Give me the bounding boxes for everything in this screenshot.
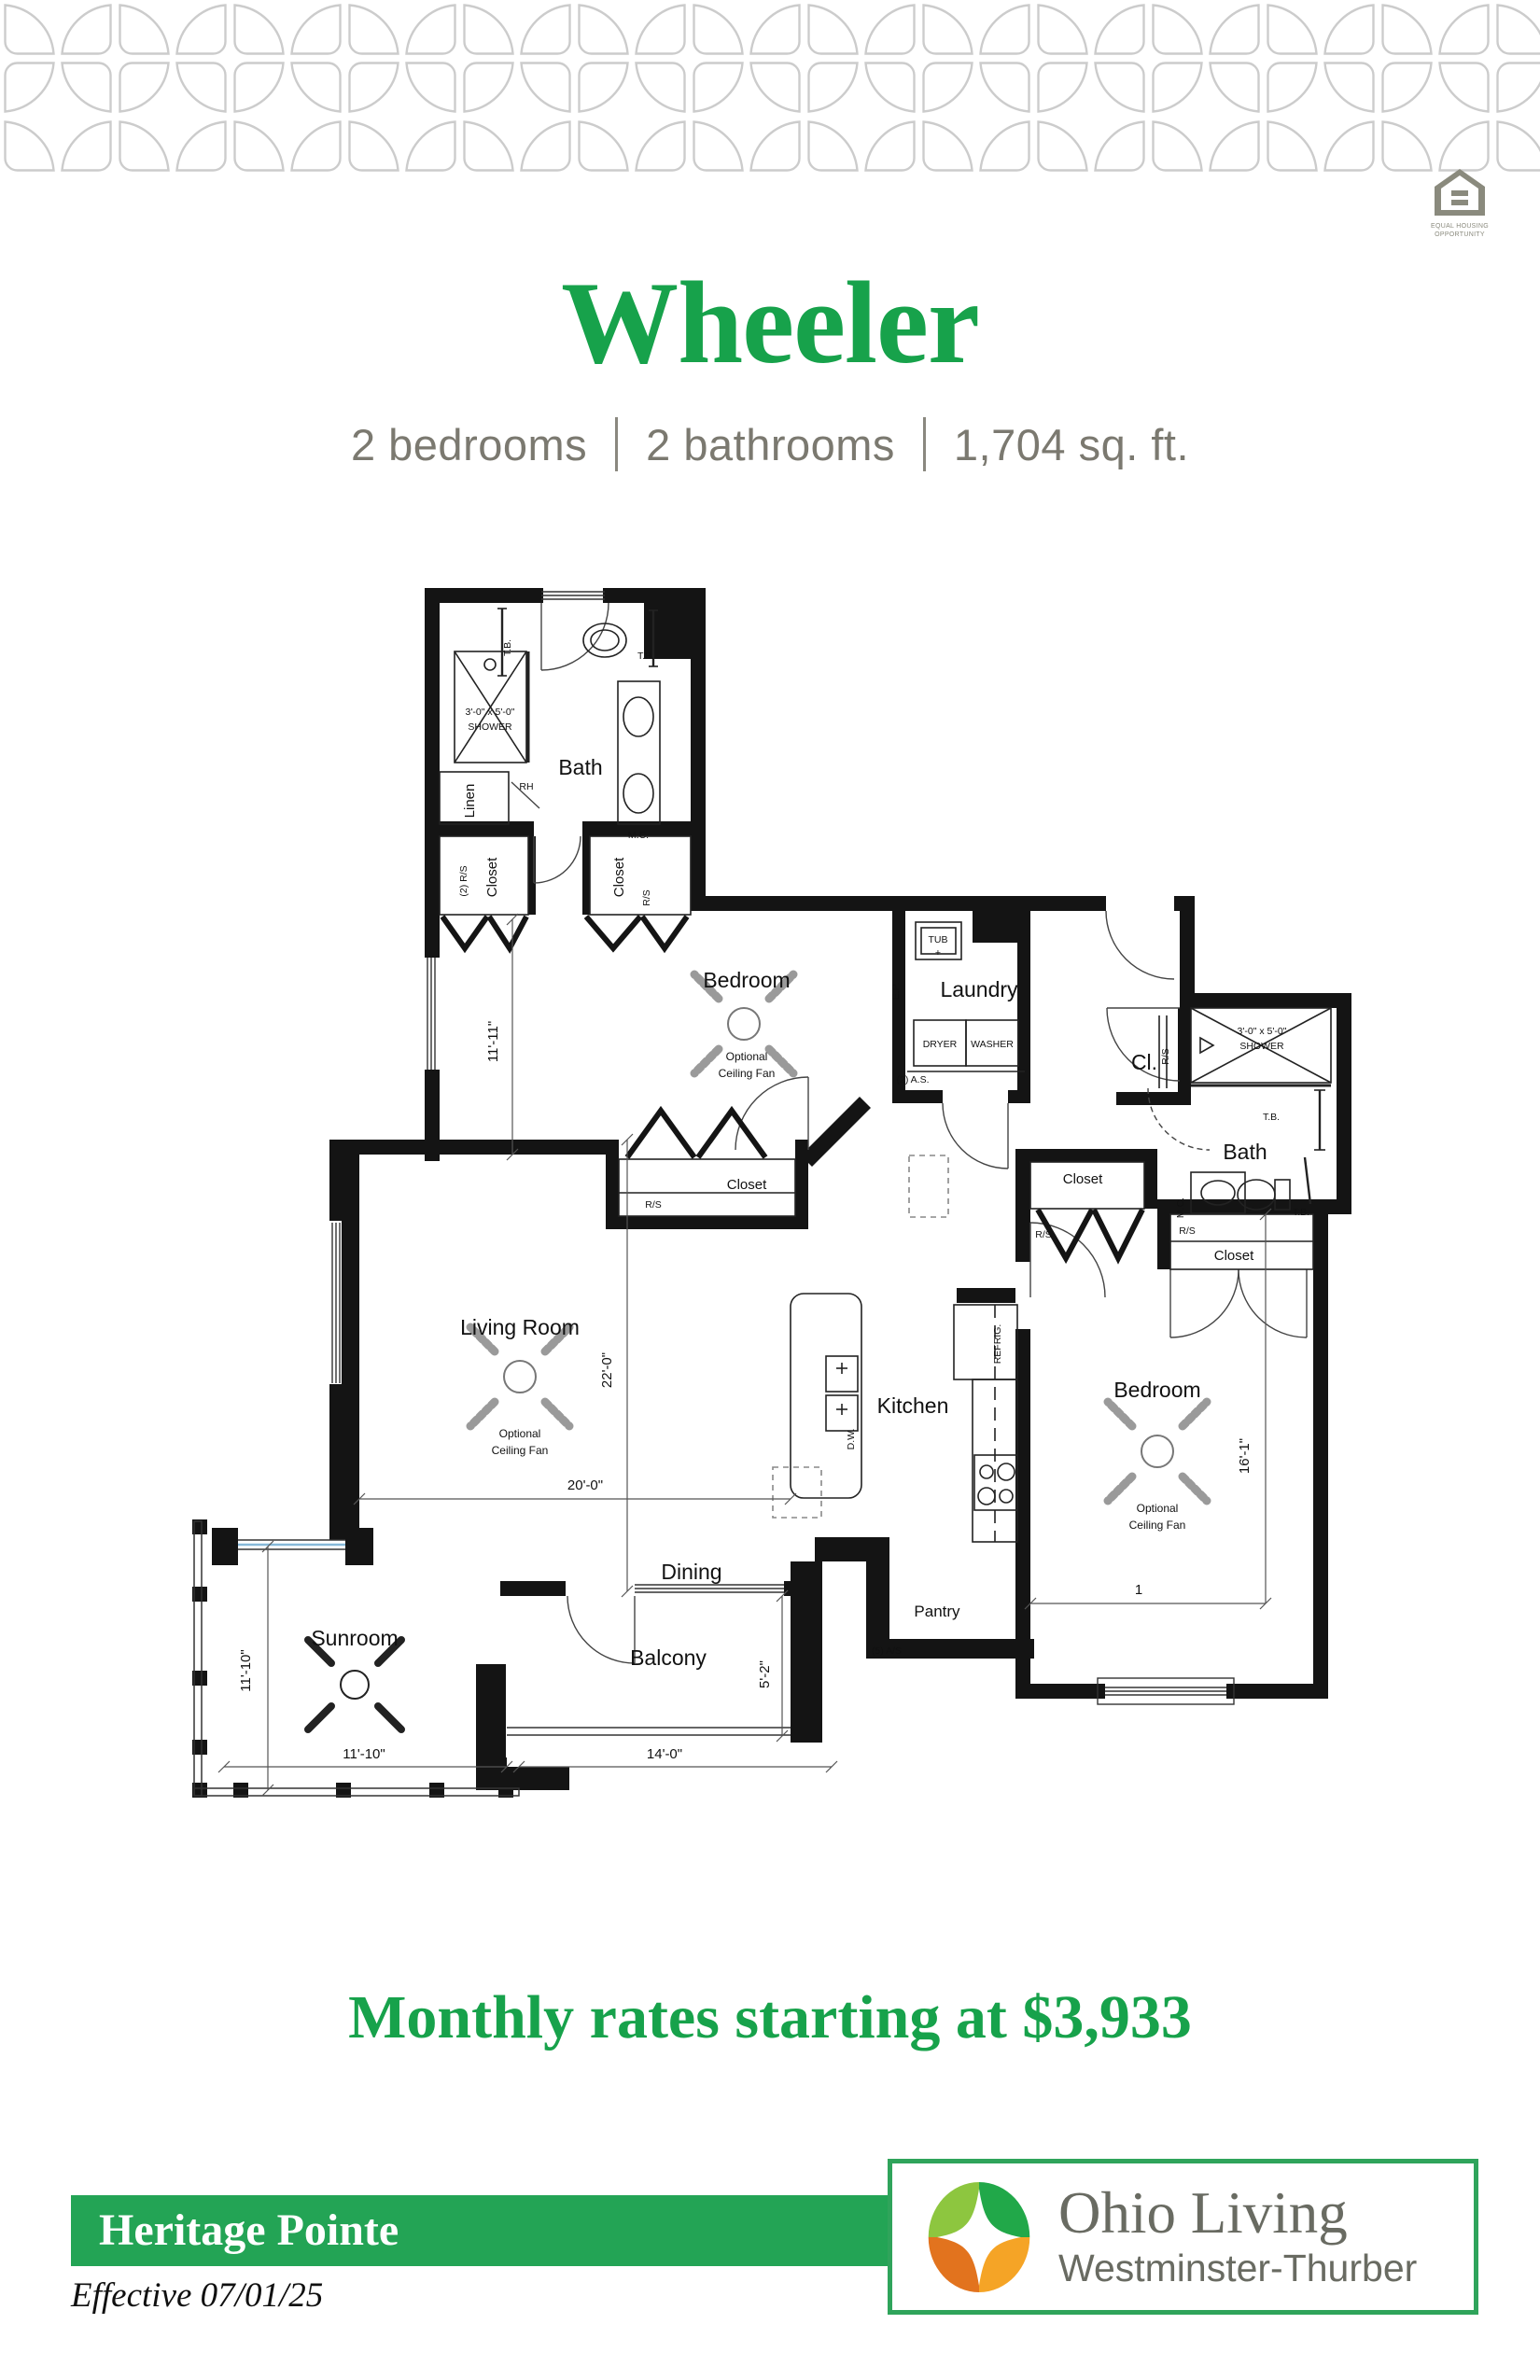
as2-label: (2) A.S. <box>896 1074 929 1085</box>
brand-logo-box: Ohio Living Westminster-Thurber <box>888 2159 1478 2315</box>
room-label-sunroom: Sunroom <box>311 1626 398 1650</box>
fan1-ceiling: Ceiling Fan <box>719 1067 776 1080</box>
spec-sqft: 1,704 sq. ft. <box>954 419 1189 470</box>
dim-bedroom1: 11'-11" <box>485 1021 501 1062</box>
bifold-doors <box>442 917 1142 1258</box>
spec-divider <box>615 417 618 471</box>
brand-name: Ohio Living <box>1058 2183 1417 2243</box>
dim-one: 1 <box>1135 1582 1142 1598</box>
closet-label-2: Closet <box>611 857 627 897</box>
closet-label-5: Closet <box>1214 1248 1254 1264</box>
mc-label-2: M.C. <box>1175 1197 1186 1218</box>
tb-label-4: T.B. <box>1293 1207 1309 1218</box>
effective-date: Effective 07/01/25 <box>71 2275 323 2316</box>
closet-label-3: Closet <box>727 1177 767 1193</box>
dim-sunroom-v: 11'-10" <box>238 1649 254 1691</box>
tb-label-2: T.B. <box>637 651 654 662</box>
mc-label-1: M.C. <box>628 830 649 841</box>
page-title: Wheeler <box>0 245 1540 403</box>
pricing-headline: Monthly rates starting at $3,933 <box>0 1971 1540 2065</box>
equal-housing-logo: EQUAL HOUSING OPPORTUNITY <box>1422 168 1497 240</box>
rs2-label: (2) R/S <box>458 865 469 896</box>
fan2-ceiling: Ceiling Fan <box>492 1444 549 1457</box>
eho-caption-line1: EQUAL HOUSING <box>1422 223 1497 231</box>
fan3-optional: Optional <box>1137 1502 1179 1515</box>
floor-plan: Bath Bedroom Laundry Cl. Bath Living Roo… <box>168 560 1391 1829</box>
dim-living-w: 20'-0" <box>567 1477 603 1493</box>
ohio-living-mark-icon <box>924 2176 1034 2299</box>
ep-label: E.P. <box>890 983 902 1001</box>
tub-label: TUB <box>929 934 948 945</box>
equal-housing-house-icon <box>1433 168 1487 217</box>
tb-label-3: T.B. <box>1263 1112 1280 1123</box>
rs-label-2: R/S <box>645 1199 662 1211</box>
shower2-size: 3'-0" x 5'-0" <box>1238 1026 1287 1037</box>
dryer-label: DRYER <box>923 1039 958 1050</box>
tb-label-1: T.B. <box>502 639 513 656</box>
refrig-label: REFRIG. <box>992 1324 1003 1365</box>
fan1-optional: Optional <box>726 1050 768 1063</box>
ceiling-fans <box>308 974 1207 1729</box>
rs-label-1: R/S <box>641 889 652 906</box>
shower1-label: SHOWER <box>468 721 512 733</box>
room-label-living: Living Room <box>460 1315 580 1339</box>
unit-specs: 2 bedrooms 2 bathrooms 1,704 sq. ft. <box>0 409 1540 480</box>
dim-balcony-d: 5'-2" <box>757 1660 773 1688</box>
flyer-page: EQUAL HOUSING OPPORTUNITY Wheeler 2 bedr… <box>0 0 1540 2380</box>
rs-label-3: R/S <box>1035 1229 1052 1240</box>
closet-label-4: Closet <box>1063 1171 1103 1187</box>
shower2-label: SHOWER <box>1239 1041 1284 1052</box>
closet-label-1: Closet <box>484 857 500 897</box>
room-label-cl: Cl. <box>1131 1050 1157 1074</box>
brand-campus: Westminster-Thurber <box>1058 2247 1417 2290</box>
spec-bathrooms: 2 bathrooms <box>646 419 895 470</box>
room-label-balcony: Balcony <box>630 1645 707 1670</box>
room-label-dining: Dining <box>661 1560 721 1584</box>
rh-label: RH <box>519 781 533 792</box>
as5-label: (5) A/S <box>872 1645 902 1657</box>
room-label-bath2: Bath <box>1223 1140 1267 1164</box>
room-label-kitchen: Kitchen <box>877 1393 949 1418</box>
washer-label: WASHER <box>971 1039 1014 1050</box>
room-label-laundry: Laundry <box>940 977 1018 1001</box>
room-label-bedroom1: Bedroom <box>703 968 790 992</box>
linen-label: Linen <box>462 784 478 819</box>
ornament-pattern <box>0 0 1540 177</box>
shower1-size: 3'-0" x 5'-0" <box>466 707 515 718</box>
dim-sunroom-h: 11'-10" <box>343 1746 385 1762</box>
room-label-bedroom2: Bedroom <box>1113 1378 1200 1402</box>
rs-label-5: R/S <box>1160 1048 1171 1065</box>
dim-living-l: 22'-0" <box>599 1352 615 1388</box>
eho-caption-line2: OPPORTUNITY <box>1422 231 1497 240</box>
tub-plus: + <box>935 947 941 959</box>
dw-label: D.W. <box>846 1429 857 1450</box>
fan2-optional: Optional <box>499 1427 541 1440</box>
dim-balcony-w: 14'-0" <box>647 1746 682 1762</box>
spec-bedrooms: 2 bedrooms <box>351 419 587 470</box>
room-label-pantry: Pantry <box>914 1603 960 1620</box>
doors <box>511 603 1307 1663</box>
spec-divider <box>923 417 926 471</box>
rs-label-4: R/S <box>1179 1225 1196 1237</box>
fan3-ceiling: Ceiling Fan <box>1129 1519 1186 1532</box>
room-label-bath1: Bath <box>558 755 602 779</box>
dim-bedroom2: 16'-1" <box>1237 1438 1253 1474</box>
